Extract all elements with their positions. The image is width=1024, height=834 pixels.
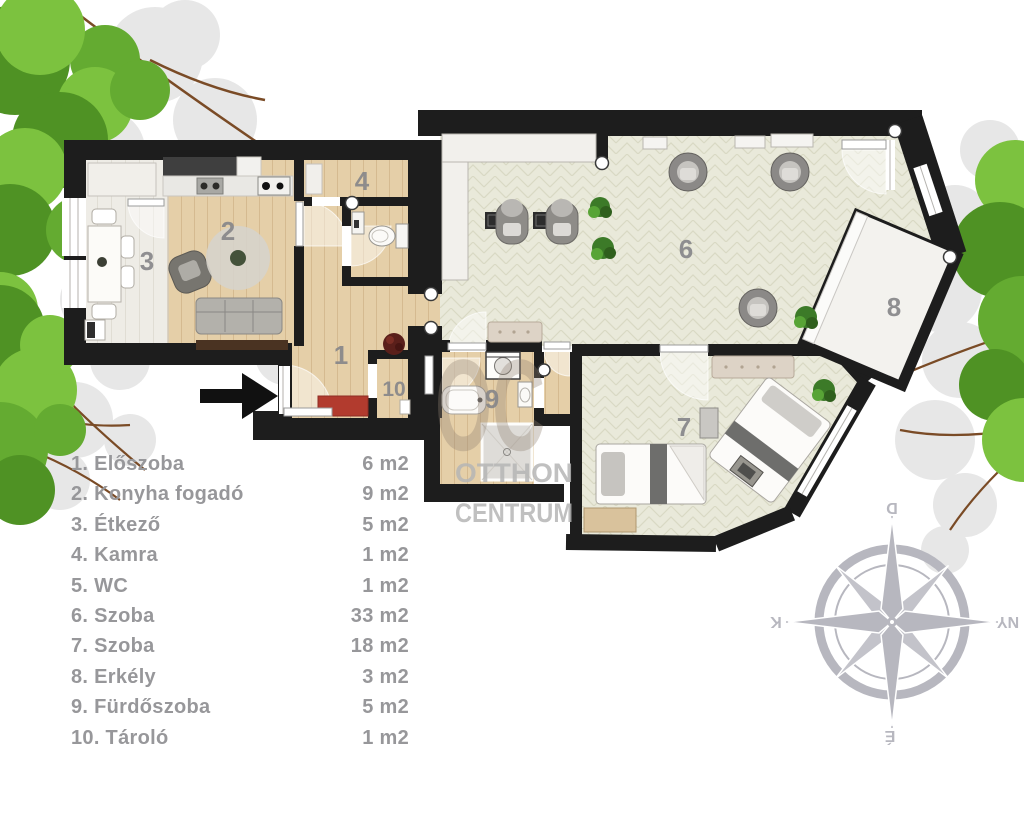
legend-room-area: 18 m2 xyxy=(351,631,409,661)
table-decor xyxy=(97,257,107,267)
legend-room-area: 3 m2 xyxy=(362,662,409,692)
legend-room-area: 33 m2 xyxy=(351,601,409,631)
legend-row: 1. Előszoba6 m2 xyxy=(71,449,409,479)
room-2-number: 2 xyxy=(221,216,235,246)
legend-row: 4. Kamra1 m2 xyxy=(71,540,409,570)
room-9-number: 9 xyxy=(485,384,499,414)
storage-door-gap xyxy=(368,364,377,398)
armchair xyxy=(739,289,777,327)
wall-wc-bottom xyxy=(342,277,408,286)
single-bed xyxy=(596,444,706,504)
room-3-number: 3 xyxy=(140,246,154,276)
room-1-number: 1 xyxy=(334,340,348,370)
legend-room-area: 5 m2 xyxy=(362,692,409,722)
window-entry xyxy=(279,366,290,414)
stove xyxy=(258,177,290,195)
legend-room-area: 9 m2 xyxy=(362,479,409,509)
watermark-line2: CENTRUM xyxy=(455,498,573,528)
legend-row: 5. WC1 m2 xyxy=(71,571,409,601)
bathroom-door-leaf xyxy=(425,356,433,394)
watermark-line1: OTTHON xyxy=(455,458,573,488)
wall-bedroom-top-a xyxy=(572,344,660,356)
legend-room-label: 5. WC xyxy=(71,571,128,601)
kitchen-door-leaf xyxy=(296,202,303,246)
legend-row: 7. Szoba18 m2 xyxy=(71,631,409,661)
legend-room-area: 1 m2 xyxy=(362,723,409,753)
wall-kitchen-hall xyxy=(294,246,304,346)
wall-top-right-block xyxy=(418,110,922,136)
corridor-door-leaf xyxy=(544,342,570,349)
compass-label-west: NY xyxy=(997,613,1020,630)
room-8-number: 8 xyxy=(887,292,901,322)
wall-hall-bottom xyxy=(278,418,424,440)
compass-label-south: D xyxy=(886,499,898,516)
hall-livingroom-opening-floor xyxy=(408,294,442,326)
room-4-number: 4 xyxy=(355,166,370,196)
swivel-chair xyxy=(546,199,578,244)
swivel-chair xyxy=(496,199,528,244)
terrace-door-leaf xyxy=(842,140,886,149)
legend-room-label: 2. Konyha fogadó xyxy=(71,479,244,509)
legend-row: 10. Tároló1 m2 xyxy=(71,723,409,753)
legend-room-area: 5 m2 xyxy=(362,510,409,540)
legend-row: 3. Étkező5 m2 xyxy=(71,510,409,540)
kitchen-upper-cabinet xyxy=(163,157,237,178)
legend-row: 9. Fürdőszoba5 m2 xyxy=(71,692,409,722)
wreath-plant xyxy=(383,333,405,355)
window-dining-2 xyxy=(62,260,86,308)
legend-room-label: 8. Erkély xyxy=(71,662,156,692)
legend: 1. Előszoba6 m2 2. Konyha fogadó9 m2 3. … xyxy=(71,449,409,753)
nightstand xyxy=(700,408,718,438)
legend-row: 8. Erkély3 m2 xyxy=(71,662,409,692)
room-6-number: 6 xyxy=(679,234,693,264)
wc-door-gap xyxy=(342,226,351,266)
bedroom-door-leaf xyxy=(660,345,708,352)
legend-room-label: 6. Szoba xyxy=(71,601,155,631)
pantry-door-gap xyxy=(312,197,340,206)
legend-room-label: 10. Tároló xyxy=(71,723,168,753)
small-cabinet xyxy=(85,320,105,340)
armchair xyxy=(771,153,809,191)
wall-between-blocks xyxy=(408,140,442,294)
tv-console xyxy=(196,340,288,350)
window-terrace-side xyxy=(886,140,895,190)
pantry-shelf xyxy=(306,164,322,194)
legend-row: 2. Konyha fogadó9 m2 xyxy=(71,479,409,509)
toilet xyxy=(369,224,408,248)
room-7-number: 7 xyxy=(677,412,691,442)
compass-rose: D NY É K xyxy=(770,499,1019,746)
dining-door-leaf xyxy=(128,199,164,206)
pantry-furniture xyxy=(306,164,322,194)
coffee-table-plant xyxy=(230,250,246,266)
tufted-bench xyxy=(712,356,794,378)
legend-row: 6. Szoba33 m2 xyxy=(71,601,409,631)
legend-room-label: 4. Kamra xyxy=(71,540,158,570)
dining-cabinet xyxy=(88,163,156,196)
legend-room-area: 1 m2 xyxy=(362,540,409,570)
wall-bedroom-bottom xyxy=(566,542,716,544)
storage-shelf xyxy=(400,400,410,414)
floorplan-page: OC OTTHON CENTRUM 1 2 3 4 6 7 8 9 10 xyxy=(0,0,1024,834)
wc-sink xyxy=(352,212,364,234)
window-dining-1 xyxy=(62,198,86,256)
entrance-door-leaf xyxy=(284,408,332,416)
legend-room-area: 1 m2 xyxy=(362,571,409,601)
compass-label-north: É xyxy=(884,727,895,746)
legend-room-label: 3. Étkező xyxy=(71,510,160,540)
wardrobe xyxy=(584,508,636,532)
room-10-number: 10 xyxy=(382,378,405,401)
cooktop-left xyxy=(197,178,223,194)
wall-kitchen-partition xyxy=(294,157,304,201)
legend-room-area: 6 m2 xyxy=(362,449,409,479)
legend-room-label: 7. Szoba xyxy=(71,631,155,661)
legend-room-label: 9. Fürdőszoba xyxy=(71,692,210,722)
compass-label-east: K xyxy=(770,613,782,630)
legend-room-label: 1. Előszoba xyxy=(71,449,184,479)
sofa xyxy=(196,298,282,334)
round-rug xyxy=(206,226,270,290)
armchair xyxy=(669,153,707,191)
